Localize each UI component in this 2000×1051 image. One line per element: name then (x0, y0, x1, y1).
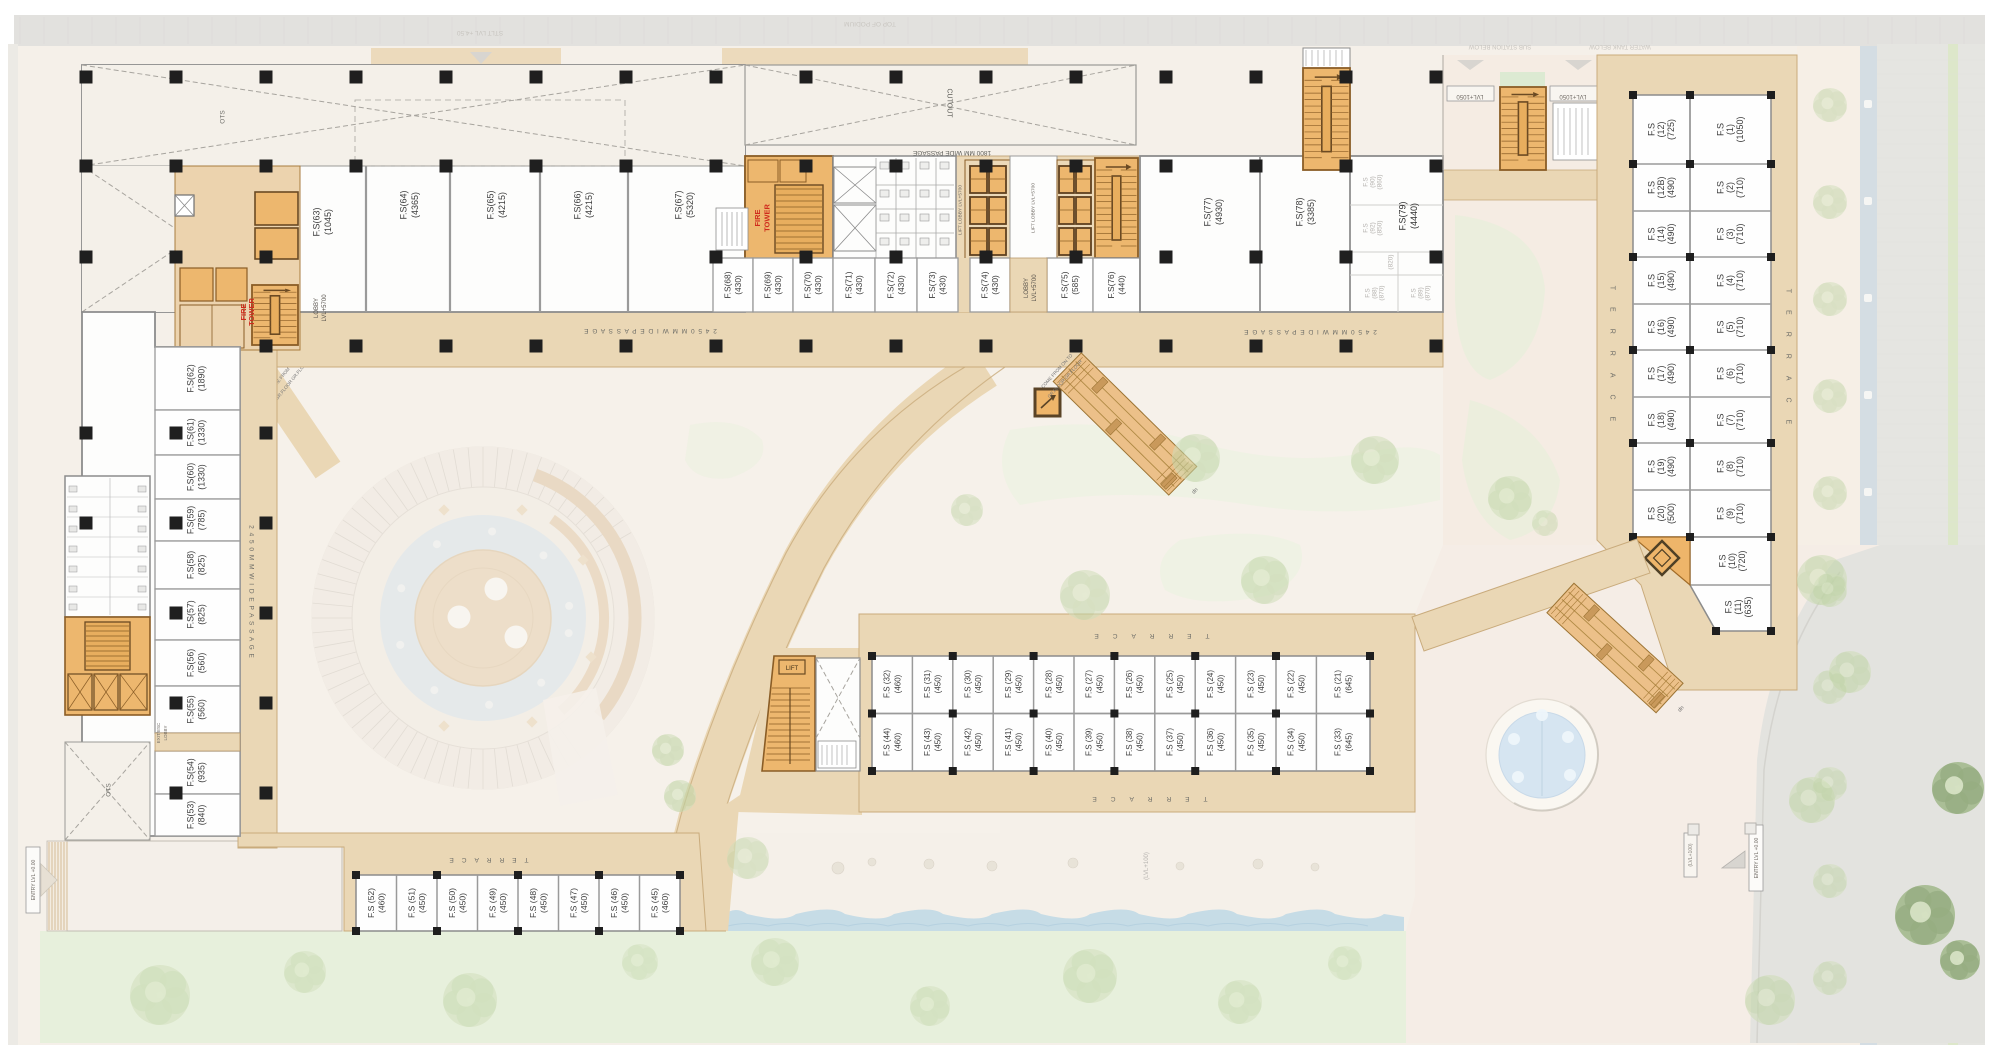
svg-text:1800 MM WIDE PASSAGE: 1800 MM WIDE PASSAGE (912, 149, 991, 156)
svg-text:F.S(55)(560): F.S(55)(560) (186, 695, 207, 723)
svg-text:F.S(74)(430): F.S(74)(430) (980, 271, 1001, 298)
svg-text:F.S(63)(1045): F.S(63)(1045) (312, 207, 333, 236)
svg-text:LVL+1050: LVL+1050 (1456, 93, 1484, 99)
svg-text:TERRACE: TERRACE (1609, 286, 1616, 438)
svg-text:2 4 5 0 M M W I D E P A S: 2 4 5 0 M M W I D E P A S S A G E (583, 327, 717, 334)
svg-text:SUB STATION BELOW: SUB STATION BELOW (1468, 43, 1531, 49)
svg-text:F.S(65)(4215): F.S(65)(4215) (486, 190, 507, 219)
svg-text:LVL+1050: LVL+1050 (1559, 93, 1587, 99)
svg-text:LIFT LOBBY LVL+5700: LIFT LOBBY LVL+5700 (1031, 183, 1037, 233)
svg-text:OTS: OTS (105, 783, 112, 797)
svg-text:F.S(66)(4215): F.S(66)(4215) (573, 190, 594, 219)
svg-text:F.S(70)(430): F.S(70)(430) (803, 271, 824, 298)
svg-text:TERRACE: TERRACE (1785, 289, 1792, 441)
svg-text:WATER TANK BELOW: WATER TANK BELOW (1589, 43, 1651, 49)
svg-text:F.S(77)(4930): F.S(77)(4930) (1203, 197, 1224, 226)
svg-text:F.S(72)(430): F.S(72)(430) (886, 271, 907, 298)
svg-text:2 4 5 0 M M W I D E P A S: 2 4 5 0 M M W I D E P A S S A G E (1243, 328, 1377, 335)
svg-text:LIFT: LIFT (786, 666, 799, 672)
svg-text:(LVL+100): (LVL+100) (1688, 843, 1694, 866)
svg-text:F.S(56)(560): F.S(56)(560) (186, 649, 207, 677)
svg-text:STLT LVL +4.50: STLT LVL +4.50 (457, 29, 504, 36)
svg-text:F.S(58)(825): F.S(58)(825) (186, 551, 207, 579)
svg-text:F.S(62)(1890): F.S(62)(1890) (186, 364, 207, 392)
svg-text:TOP OF PODIUM: TOP OF PODIUM (844, 20, 896, 27)
svg-text:ENTRY LVL +0.00: ENTRY LVL +0.00 (1754, 838, 1760, 879)
svg-text:F.S(67)(5320): F.S(67)(5320) (674, 190, 695, 219)
svg-text:F.S(53)(840): F.S(53)(840) (186, 801, 207, 829)
svg-text:LIFT LOBBY LVL+5700: LIFT LOBBY LVL+5700 (958, 185, 964, 235)
svg-text:F.S(57)(825): F.S(57)(825) (186, 600, 207, 628)
svg-text:CUTOUT: CUTOUT (946, 88, 953, 118)
svg-text:OTS: OTS (219, 110, 226, 124)
svg-text:ENTRY LVL +0.00: ENTRY LVL +0.00 (31, 860, 37, 901)
svg-text:F.S(78)(3385): F.S(78)(3385) (1295, 197, 1316, 226)
svg-text:F.S(73)(430): F.S(73)(430) (927, 271, 948, 298)
svg-text:TERRACE: TERRACE (1080, 632, 1209, 639)
svg-text:2 4 5 0 M M W I D E P A S: 2 4 5 0 M M W I D E P A S S A G E (248, 525, 255, 659)
svg-text:F.S(71)(430): F.S(71)(430) (844, 271, 865, 298)
svg-text:(820): (820) (1387, 254, 1394, 269)
svg-text:(LVL+100): (LVL+100) (1144, 852, 1150, 880)
svg-text:F.S(68)(430): F.S(68)(430) (723, 271, 744, 298)
svg-text:F.S(76)(440): F.S(76)(440) (1106, 271, 1127, 298)
svg-text:F.S(54)(935): F.S(54)(935) (186, 758, 207, 786)
svg-text:TERRACE: TERRACE (1078, 795, 1207, 802)
svg-text:F.S(59)(785): F.S(59)(785) (186, 506, 207, 534)
svg-text:F.S(69)(430): F.S(69)(430) (763, 271, 784, 298)
svg-text:F.S(75)(585): F.S(75)(585) (1060, 271, 1081, 298)
svg-text:F.S(64)(4365): F.S(64)(4365) (399, 190, 420, 219)
svg-text:F.S(61)(1330): F.S(61)(1330) (186, 418, 207, 446)
svg-text:F.S(60)(1330): F.S(60)(1330) (186, 463, 207, 491)
svg-text:TERRACE: TERRACE (441, 856, 528, 863)
svg-text:F.S(79)(4440): F.S(79)(4440) (1398, 201, 1419, 230)
